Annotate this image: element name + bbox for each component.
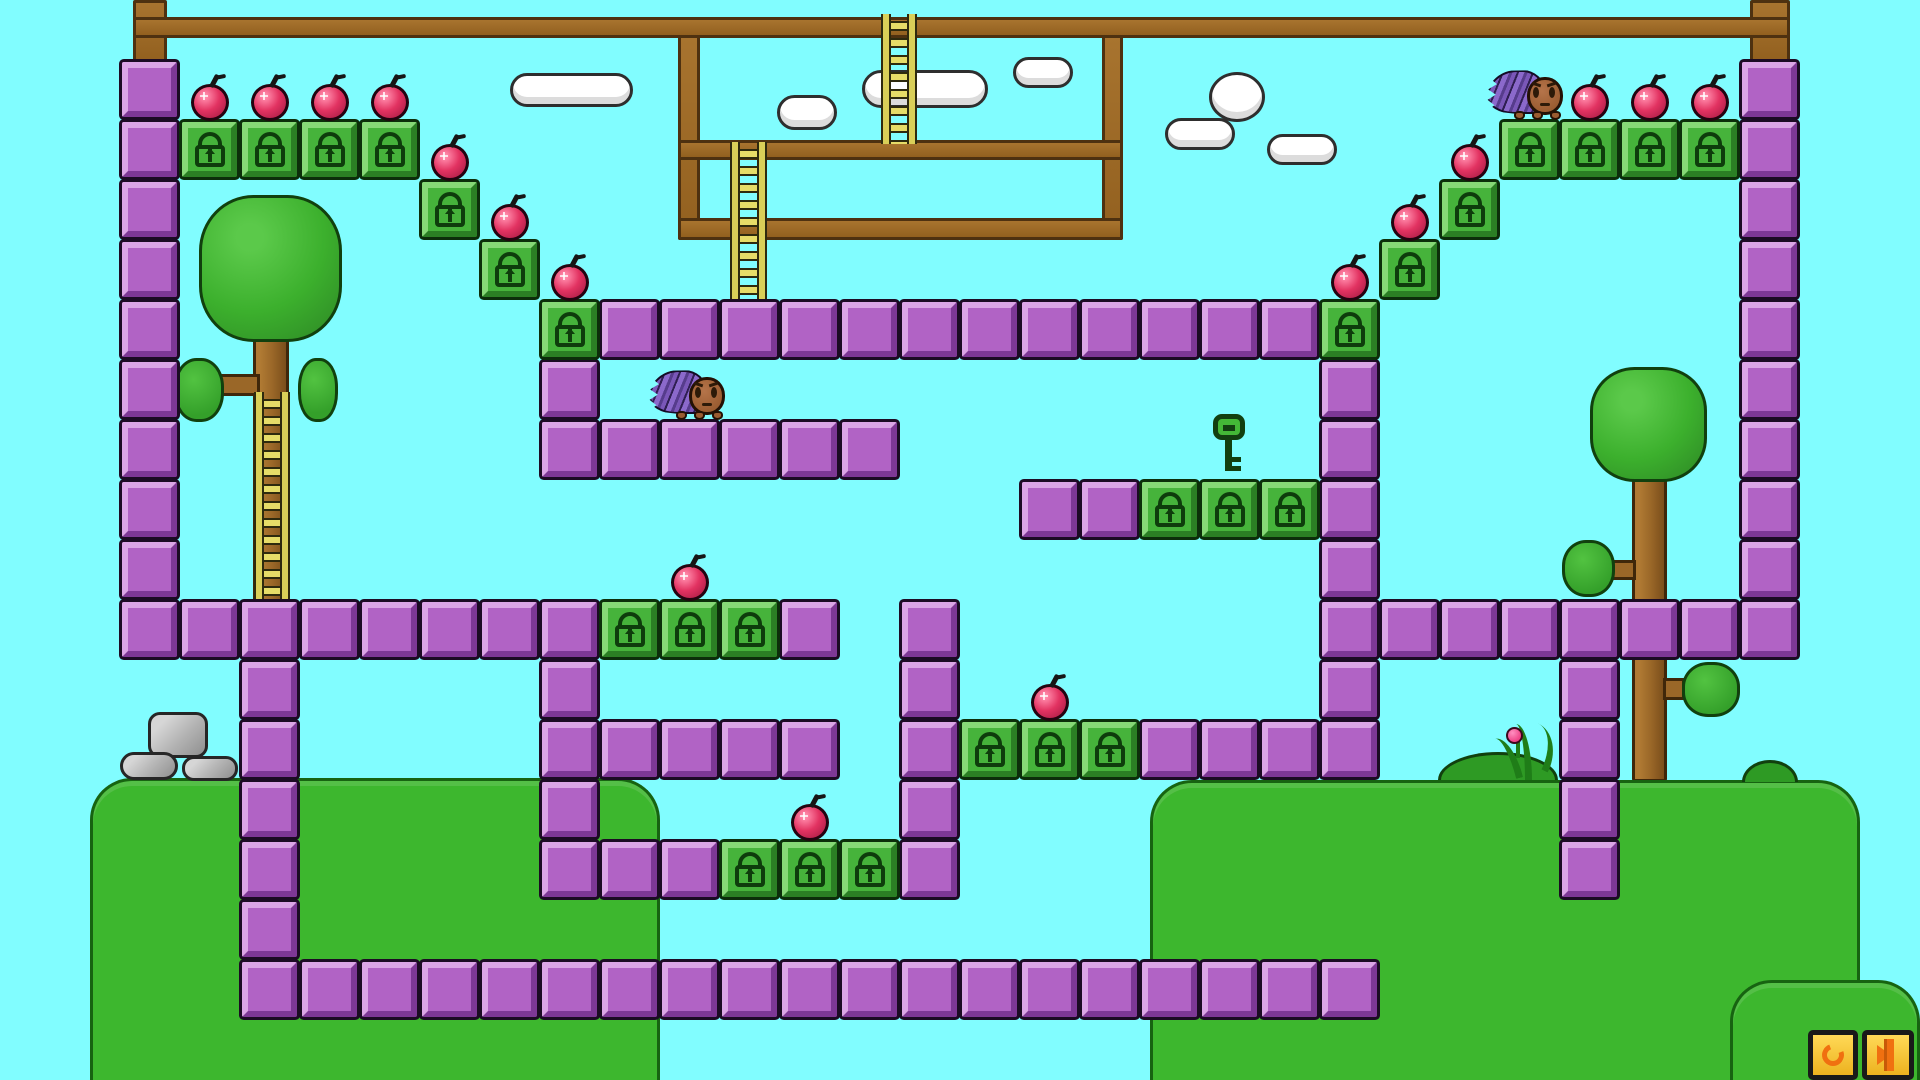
brick-block: [302, 962, 357, 1017]
brick-block: [902, 602, 957, 657]
restart-button[interactable]: [1808, 1030, 1858, 1080]
padlock-keyhole: [988, 749, 992, 762]
lock-block[interactable]: [1142, 482, 1197, 537]
brick-block: [1742, 542, 1797, 597]
apple-collectible[interactable]: [548, 254, 592, 302]
frame-post-left: [678, 33, 700, 240]
brick-block: [1082, 962, 1137, 1017]
brick-block: [1022, 302, 1077, 357]
brick-block: [1142, 722, 1197, 777]
brick-block: [542, 662, 597, 717]
tree-left-foliage: [199, 195, 342, 342]
brick-block: [1082, 482, 1137, 537]
porcupine-second-eye: [711, 387, 717, 398]
brick-block: [1322, 482, 1377, 537]
apple-collectible[interactable]: [188, 74, 232, 122]
brick-block: [602, 302, 657, 357]
apple-collectible[interactable]: [248, 74, 292, 122]
brick-block: [962, 302, 1017, 357]
brick-block: [182, 602, 237, 657]
brick-block: [1742, 602, 1797, 657]
tree-right-leaf-bulb: [1682, 662, 1740, 717]
padlock-keyhole: [688, 629, 692, 642]
apple-body: [1331, 264, 1369, 301]
brick-block: [482, 602, 537, 657]
padlock-keyhole: [268, 149, 272, 162]
apple-body: [671, 564, 709, 601]
brick-block: [722, 302, 777, 357]
brick-block: [902, 782, 957, 837]
brick-block: [362, 602, 417, 657]
brick-block: [842, 302, 897, 357]
brick-block: [1142, 962, 1197, 1017]
brick-block: [122, 602, 177, 657]
brick-block: [1562, 722, 1617, 777]
brick-block: [1742, 242, 1797, 297]
brick-block: [242, 662, 297, 717]
lock-block[interactable]: [1082, 722, 1137, 777]
brick-block: [962, 962, 1017, 1017]
padlock-keyhole: [748, 629, 752, 642]
key-item[interactable]: [1211, 414, 1247, 472]
lock-block[interactable]: [182, 122, 237, 177]
lock-block[interactable]: [662, 602, 717, 657]
brick-block: [1322, 362, 1377, 417]
padlock-keyhole: [628, 629, 632, 642]
brick-block: [242, 962, 297, 1017]
padlock-keyhole: [1228, 509, 1232, 522]
brick-block: [1562, 842, 1617, 897]
lock-block[interactable]: [1022, 722, 1077, 777]
lock-block[interactable]: [842, 842, 897, 897]
grass-bump: [1742, 760, 1798, 782]
porcupine-player-foot: [1514, 111, 1525, 120]
brick-block: [1202, 722, 1257, 777]
lock-block[interactable]: [242, 122, 297, 177]
top-beam: [133, 17, 1790, 38]
padlock-keyhole: [1528, 149, 1532, 162]
game-viewport: [0, 0, 1920, 1080]
door-bar-icon: [1884, 1039, 1894, 1071]
brick-block: [602, 842, 657, 897]
stone: [182, 756, 238, 781]
brick-block: [1502, 602, 1557, 657]
lock-block[interactable]: [722, 602, 777, 657]
brick-block: [122, 242, 177, 297]
apple-collectible[interactable]: [1028, 674, 1072, 722]
padlock-keyhole: [1408, 269, 1412, 282]
brick-block: [662, 422, 717, 477]
tree-left-branch: [218, 374, 260, 396]
apple-collectible[interactable]: [308, 74, 352, 122]
brick-block: [842, 962, 897, 1017]
key-t2: [1232, 466, 1241, 471]
brick-block: [1742, 482, 1797, 537]
brick-block: [722, 962, 777, 1017]
brick-block: [842, 422, 897, 477]
apple-collectible[interactable]: [1628, 74, 1672, 122]
apple-body: [371, 84, 409, 121]
brick-block: [1142, 302, 1197, 357]
brick-block: [122, 122, 177, 177]
apple-body: [311, 84, 349, 121]
brick-block: [782, 302, 837, 357]
brick-block: [1742, 302, 1797, 357]
brick-block: [122, 422, 177, 477]
lock-block[interactable]: [602, 602, 657, 657]
lock-block[interactable]: [1562, 122, 1617, 177]
brick-block: [1262, 302, 1317, 357]
brick-block: [422, 962, 477, 1017]
brick-block: [542, 842, 597, 897]
lock-block[interactable]: [1262, 482, 1317, 537]
key-bow: [1213, 414, 1245, 440]
lock-block[interactable]: [1442, 182, 1497, 237]
padlock-keyhole: [808, 869, 812, 882]
apple-collectible[interactable]: [1448, 134, 1492, 182]
apple-collectible[interactable]: [1568, 74, 1612, 122]
brick-block: [1322, 662, 1377, 717]
brick-block: [1562, 602, 1617, 657]
brick-block: [782, 422, 837, 477]
brick-block: [1322, 422, 1377, 477]
brick-block: [242, 842, 297, 897]
brick-block: [1562, 662, 1617, 717]
brick-block: [782, 722, 837, 777]
brick-block: [242, 722, 297, 777]
brick-block: [242, 602, 297, 657]
brick-block: [482, 962, 537, 1017]
lock-block[interactable]: [482, 242, 537, 297]
padlock-keyhole: [1048, 749, 1052, 762]
brick-block: [542, 722, 597, 777]
lock-block[interactable]: [362, 122, 417, 177]
lock-block[interactable]: [1322, 302, 1377, 357]
cloud: [1209, 72, 1265, 122]
ladder-frame[interactable]: [732, 142, 765, 302]
lock-block[interactable]: [422, 182, 477, 237]
porcupine-player-mouth: [1540, 103, 1550, 106]
brick-block: [1682, 602, 1737, 657]
padlock-keyhole: [568, 329, 572, 342]
lock-block[interactable]: [1622, 122, 1677, 177]
brick-block: [1022, 962, 1077, 1017]
brick-block: [1202, 302, 1257, 357]
brick-block: [602, 422, 657, 477]
padlock-keyhole: [748, 869, 752, 882]
brick-block: [122, 362, 177, 417]
tree-right-foliage: [1590, 367, 1707, 482]
porcupine-player: [1487, 70, 1565, 120]
apple-collectible[interactable]: [488, 194, 532, 242]
tree-left-leaf-bulb: [174, 358, 224, 422]
brick-block: [662, 842, 717, 897]
padlock-keyhole: [388, 149, 392, 162]
brick-block: [122, 542, 177, 597]
brick-block: [902, 302, 957, 357]
padlock-keyhole: [1348, 329, 1352, 342]
padlock-keyhole: [1588, 149, 1592, 162]
brick-block: [902, 962, 957, 1017]
porcupine-second-eye: [695, 387, 701, 398]
brick-block: [242, 782, 297, 837]
brick-block: [662, 302, 717, 357]
apple-collectible[interactable]: [368, 74, 412, 122]
brick-block: [1562, 782, 1617, 837]
brick-block: [122, 302, 177, 357]
padlock-keyhole: [328, 149, 332, 162]
brick-block: [122, 62, 177, 117]
brick-block: [1742, 182, 1797, 237]
cloud: [862, 70, 988, 108]
brick-block: [542, 422, 597, 477]
brick-block: [1742, 422, 1797, 477]
porcupine-player-eye: [1533, 87, 1539, 98]
tree-left-leaf-bulb: [298, 358, 338, 422]
cloud: [1165, 118, 1235, 150]
brick-block: [1322, 542, 1377, 597]
lock-block[interactable]: [542, 302, 597, 357]
padlock-keyhole: [1108, 749, 1112, 762]
lock-block[interactable]: [962, 722, 1017, 777]
apple-body: [1631, 84, 1669, 121]
brick-block: [1742, 122, 1797, 177]
brick-block: [1442, 602, 1497, 657]
brick-block: [902, 842, 957, 897]
brick-block: [902, 722, 957, 777]
cloud: [510, 73, 633, 107]
brick-block: [602, 722, 657, 777]
apple-body: [1391, 204, 1429, 241]
brick-block: [662, 722, 717, 777]
cloud: [1013, 57, 1073, 88]
brick-block: [902, 662, 957, 717]
porcupine-player-eye: [1549, 87, 1555, 98]
brick-block: [602, 962, 657, 1017]
brick-block: [542, 602, 597, 657]
padlock-keyhole: [1468, 209, 1472, 222]
porcupine-second: [649, 370, 727, 420]
porcupine-second-foot: [712, 411, 723, 420]
apple-body: [791, 804, 829, 841]
apple-body: [1451, 144, 1489, 181]
brick-block: [1622, 602, 1677, 657]
key-stem: [1225, 439, 1232, 471]
apple-body: [251, 84, 289, 121]
padlock-keyhole: [448, 209, 452, 222]
cloud: [1267, 134, 1337, 165]
brick-block: [542, 782, 597, 837]
brick-block: [1322, 962, 1377, 1017]
lock-block[interactable]: [1682, 122, 1737, 177]
padlock-keyhole: [1708, 149, 1712, 162]
brick-block: [782, 962, 837, 1017]
brick-block: [1262, 722, 1317, 777]
porcupine-player-foot: [1532, 111, 1543, 120]
apple-collectible[interactable]: [1328, 254, 1372, 302]
frame-post-right: [1102, 33, 1123, 240]
lock-block[interactable]: [302, 122, 357, 177]
exit-button[interactable]: [1862, 1030, 1914, 1080]
apple-body: [551, 264, 589, 301]
brick-block: [122, 482, 177, 537]
ladder-top[interactable]: [883, 14, 915, 144]
brick-block: [722, 722, 777, 777]
key-t1: [1232, 457, 1241, 462]
brick-block: [1742, 362, 1797, 417]
padlock-keyhole: [208, 149, 212, 162]
padlock-keyhole: [1648, 149, 1652, 162]
ladder-tree[interactable]: [256, 392, 288, 602]
brick-block: [1742, 62, 1797, 117]
padlock-keyhole: [1288, 509, 1292, 522]
brick-block: [1322, 602, 1377, 657]
stone: [120, 752, 178, 780]
brick-block: [542, 962, 597, 1017]
padlock-keyhole: [868, 869, 872, 882]
circular-arrows-icon: [1818, 1040, 1847, 1069]
apple-collectible[interactable]: [668, 554, 712, 602]
brick-block: [782, 602, 837, 657]
lock-block[interactable]: [1202, 482, 1257, 537]
flower-stem: [1516, 742, 1520, 758]
apple-collectible[interactable]: [1388, 194, 1432, 242]
brick-block: [1022, 482, 1077, 537]
apple-body: [1571, 84, 1609, 121]
lock-block[interactable]: [722, 842, 777, 897]
brick-block: [1262, 962, 1317, 1017]
apple-body: [491, 204, 529, 241]
brick-block: [242, 902, 297, 957]
porcupine-second-foot: [694, 411, 705, 420]
brick-block: [1382, 602, 1437, 657]
apple-collectible[interactable]: [788, 794, 832, 842]
cloud: [777, 95, 837, 130]
padlock-keyhole: [508, 269, 512, 282]
apple-body: [1691, 84, 1729, 121]
brick-block: [362, 962, 417, 1017]
brick-block: [122, 182, 177, 237]
apple-body: [191, 84, 229, 121]
lock-block[interactable]: [1502, 122, 1557, 177]
brick-block: [1202, 962, 1257, 1017]
brick-block: [422, 602, 477, 657]
flower: [1506, 727, 1523, 744]
apple-body: [431, 144, 469, 181]
brick-block: [302, 602, 357, 657]
lock-block[interactable]: [782, 842, 837, 897]
apple-collectible[interactable]: [1688, 74, 1732, 122]
brick-block: [1082, 302, 1137, 357]
brick-block: [1322, 722, 1377, 777]
brick-block: [542, 362, 597, 417]
brick-block: [722, 422, 777, 477]
apple-body: [1031, 684, 1069, 721]
brick-block: [662, 962, 717, 1017]
porcupine-player-foot: [1550, 111, 1561, 120]
padlock-keyhole: [1168, 509, 1172, 522]
apple-collectible[interactable]: [428, 134, 472, 182]
porcupine-second-foot: [676, 411, 687, 420]
porcupine-second-mouth: [702, 403, 712, 406]
lock-block[interactable]: [1382, 242, 1437, 297]
tree-right-leaf-bulb: [1562, 540, 1615, 597]
